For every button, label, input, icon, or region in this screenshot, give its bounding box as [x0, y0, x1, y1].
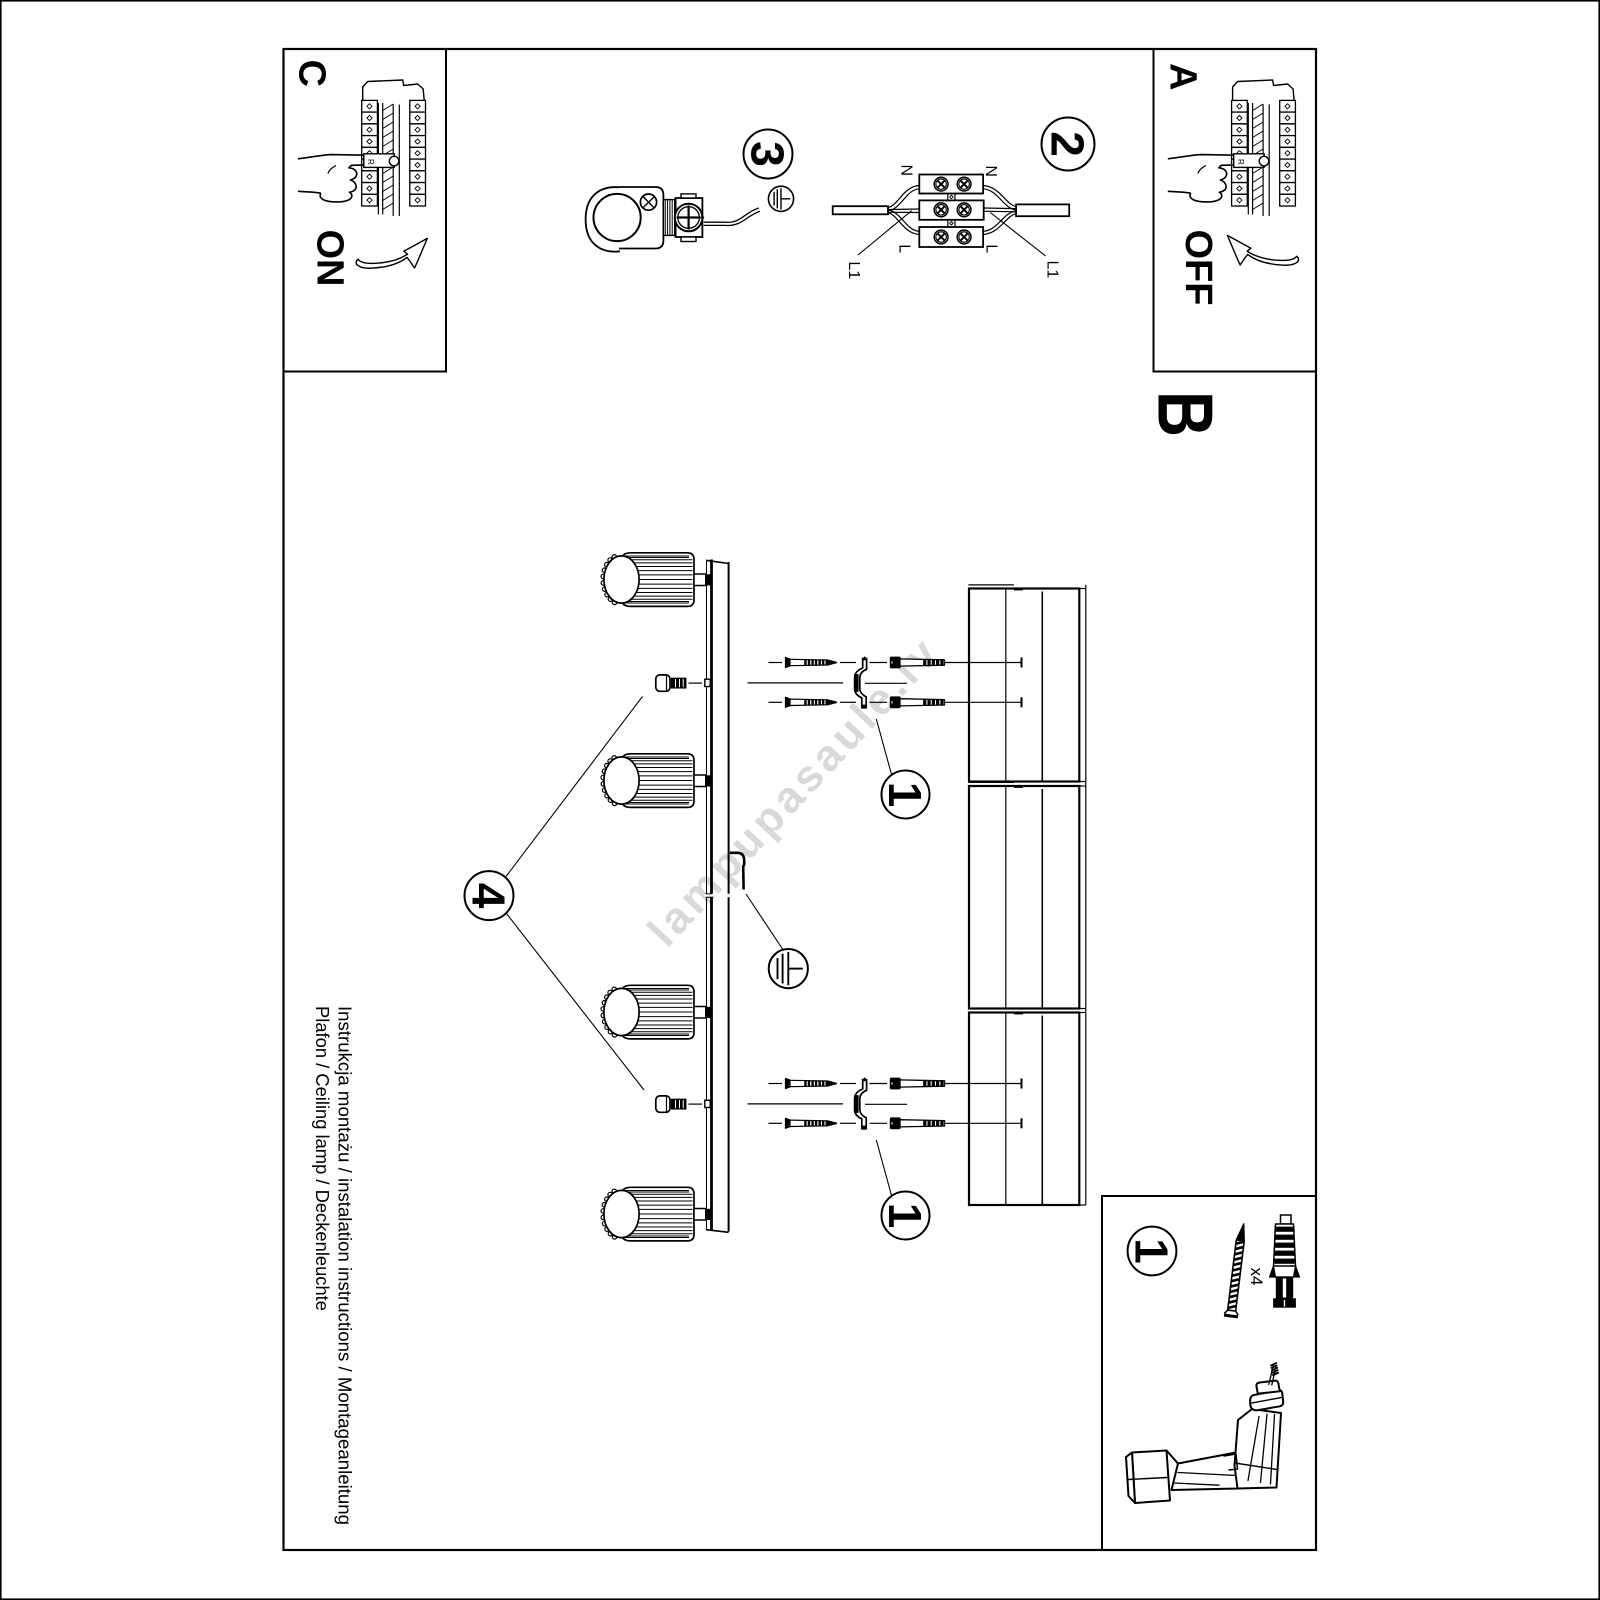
svg-text:x4: x4 [1247, 1268, 1266, 1286]
svg-text:4: 4 [462, 883, 514, 909]
svg-text:1: 1 [879, 782, 931, 808]
svg-text:3: 3 [741, 141, 793, 167]
svg-text:N: N [982, 165, 999, 177]
svg-text:2: 2 [1041, 131, 1093, 157]
svg-text:B: B [1142, 391, 1230, 437]
svg-text:R: R [366, 159, 375, 165]
svg-text:OFF: OFF [1177, 230, 1219, 306]
svg-text:Instrukcja montażu / instalati: Instrukcja montażu / instalation instruc… [335, 1006, 355, 1525]
svg-text:L1: L1 [1044, 261, 1061, 279]
svg-text:L: L [983, 244, 1000, 253]
svg-text:L1: L1 [845, 261, 862, 279]
svg-text:Plafon / Ceiling lamp / Decken: Plafon / Ceiling lamp / Deckenleuchte [312, 1006, 332, 1311]
svg-text:1: 1 [1125, 1238, 1177, 1264]
svg-text:N: N [898, 165, 915, 177]
svg-text:C: C [291, 60, 333, 87]
svg-text:L: L [895, 244, 912, 253]
svg-text:R: R [1236, 159, 1245, 165]
svg-text:ON: ON [309, 230, 351, 287]
svg-text:A: A [1162, 63, 1204, 90]
